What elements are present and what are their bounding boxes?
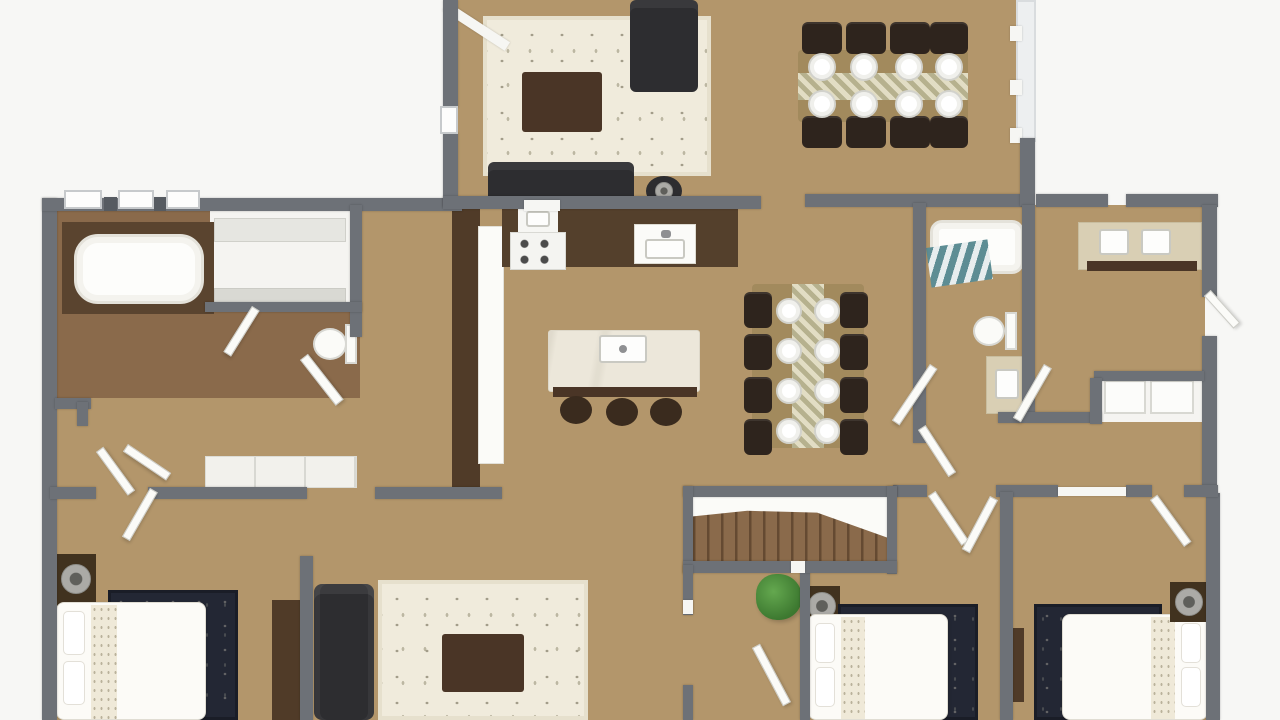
window-top-3 bbox=[166, 190, 200, 209]
wall-divider-center bbox=[913, 203, 926, 443]
balcony-railing bbox=[1016, 0, 1036, 142]
staircase bbox=[693, 497, 887, 563]
hall-dresser bbox=[205, 456, 357, 488]
kitchen-stove bbox=[510, 232, 566, 270]
wall-hall-bed-4 bbox=[1184, 485, 1218, 497]
toilet-jj-bowl bbox=[973, 316, 1005, 346]
wall-bed1-right bbox=[300, 556, 313, 720]
railing-tab-2 bbox=[1010, 80, 1022, 95]
plant bbox=[756, 574, 802, 620]
bedB-accent-band bbox=[1151, 617, 1175, 719]
vanity-cabinet bbox=[1087, 261, 1197, 271]
dining1-plate-3 bbox=[895, 53, 923, 81]
bedroom1-dresser bbox=[272, 600, 300, 720]
bath-towels bbox=[926, 239, 993, 287]
dining1-plate-8 bbox=[935, 90, 963, 118]
vanity-jj-sink bbox=[995, 369, 1019, 399]
wall-balcony-post bbox=[1020, 138, 1035, 206]
kitchen-island bbox=[548, 330, 700, 392]
wall-outer-right-lower bbox=[1206, 493, 1220, 720]
wall-bath-left-inner bbox=[350, 205, 362, 337]
bar-stool-3 bbox=[650, 398, 682, 426]
kitchen-entry-frame bbox=[524, 200, 560, 211]
hood-vent bbox=[526, 211, 550, 227]
wall-closet-r-top bbox=[1094, 371, 1204, 381]
toilet-jj bbox=[973, 312, 1019, 350]
dining2-plate-3 bbox=[776, 338, 802, 364]
wall-bedrooms-divider bbox=[1000, 492, 1013, 720]
dining1-plate-6 bbox=[850, 90, 878, 118]
wall-closet-left-bottom bbox=[205, 302, 362, 312]
bedA-hall-frame bbox=[683, 600, 693, 614]
hall-wardrobe bbox=[452, 205, 480, 490]
wall-hall-stub-bottom bbox=[683, 685, 693, 720]
window-stub-1 bbox=[104, 197, 117, 211]
island-faucet bbox=[619, 345, 627, 353]
wall-living-bottom bbox=[443, 196, 761, 209]
bed-1 bbox=[56, 602, 206, 720]
window-stub-2 bbox=[154, 197, 166, 211]
stair-exit-frame bbox=[791, 561, 805, 573]
bed1-pillow-2 bbox=[63, 661, 85, 705]
dining1-plate-2 bbox=[850, 53, 878, 81]
dining1-chair-6 bbox=[846, 116, 886, 148]
dining2-plate-6 bbox=[814, 378, 840, 404]
window-top-1 bbox=[64, 190, 102, 209]
kitchen-sink-counter bbox=[634, 224, 696, 264]
dining2-chair-2 bbox=[744, 334, 772, 370]
dining2-chair-8 bbox=[840, 419, 868, 455]
wall-outer-right-mid bbox=[1202, 336, 1217, 496]
loveseat bbox=[314, 584, 374, 720]
dining1-chair-5 bbox=[802, 116, 842, 148]
dining1-chair-7 bbox=[890, 116, 930, 148]
lamp-b bbox=[1175, 588, 1203, 616]
wall-stair-top bbox=[683, 486, 897, 497]
toilet-left-bowl bbox=[313, 328, 347, 360]
wall-bed1-top-1 bbox=[50, 487, 96, 499]
bar-stool-1 bbox=[560, 396, 592, 424]
wall-stair-bottom-2 bbox=[805, 561, 897, 573]
bed-a bbox=[808, 614, 948, 720]
dining1-plate-1 bbox=[808, 53, 836, 81]
bathtub-left bbox=[74, 234, 204, 304]
dining1-chair-4 bbox=[930, 22, 968, 54]
closet-shelfbox-2 bbox=[1150, 380, 1194, 414]
wall-bedA-left bbox=[800, 564, 810, 720]
bedB-threshold bbox=[1058, 487, 1126, 496]
closet-shelfbox-1 bbox=[1104, 380, 1146, 414]
wall-living-left-upper bbox=[443, 0, 458, 108]
vanity-sink-1 bbox=[1099, 229, 1129, 255]
kitchen-sink bbox=[645, 239, 685, 259]
wall-hall-bed-3 bbox=[1126, 485, 1152, 497]
closet-rod bbox=[214, 218, 346, 242]
dining1-plate-5 bbox=[808, 90, 836, 118]
nightstand-b bbox=[1170, 582, 1208, 622]
bedB-pillow-2 bbox=[1181, 667, 1201, 707]
wall-bed1-top-2 bbox=[148, 487, 307, 499]
dining1-chair-1 bbox=[802, 22, 842, 54]
sectional-sofa-vertical bbox=[630, 0, 698, 92]
dining2-plate-7 bbox=[776, 418, 802, 444]
dining2-plate-5 bbox=[776, 378, 802, 404]
dining1-plate-7 bbox=[895, 90, 923, 118]
wall-outer-left bbox=[42, 198, 57, 720]
dining2-chair-7 bbox=[840, 377, 868, 413]
wall-tr-top-1 bbox=[1036, 194, 1108, 207]
bar-stool-2 bbox=[606, 398, 638, 426]
toilet-jj-tank bbox=[1005, 312, 1017, 350]
bedB-pillow-1 bbox=[1181, 623, 1201, 663]
window-living-left bbox=[440, 106, 458, 134]
vanity-double bbox=[1078, 222, 1202, 270]
wall-stair-bottom-1 bbox=[683, 561, 791, 573]
door-right-exit bbox=[1204, 290, 1240, 329]
bed-b bbox=[1062, 614, 1208, 720]
bottom-rug-table bbox=[442, 634, 524, 692]
dining2-chair-5 bbox=[840, 292, 868, 328]
dining1-plate-4 bbox=[935, 53, 963, 81]
railing-tab-1 bbox=[1010, 26, 1022, 41]
vanity-sink-2 bbox=[1141, 229, 1171, 255]
kitchen-faucet bbox=[661, 230, 671, 238]
floorplan bbox=[0, 0, 1280, 720]
wall-outer-right-upper bbox=[1202, 205, 1217, 297]
dining1-chair-2 bbox=[846, 22, 886, 54]
dining2-chair-1 bbox=[744, 292, 772, 328]
dining2-chair-3 bbox=[744, 377, 772, 413]
kitchen-counter-left bbox=[478, 226, 504, 464]
wall-closet-r-left bbox=[1090, 378, 1102, 424]
dining2-plate-2 bbox=[814, 298, 840, 324]
dining1-chair-8 bbox=[930, 116, 968, 148]
dining2-chair-6 bbox=[840, 334, 868, 370]
bedA-accent-band bbox=[841, 617, 865, 719]
bedA-pillow-1 bbox=[815, 623, 835, 663]
dining2-plate-1 bbox=[776, 298, 802, 324]
window-top-2 bbox=[118, 190, 154, 209]
dining2-plate-8 bbox=[814, 418, 840, 444]
dining2-chair-4 bbox=[744, 419, 772, 455]
bed1-pillow-1 bbox=[63, 611, 85, 655]
bedA-pillow-2 bbox=[815, 667, 835, 707]
bed1-accent-band bbox=[91, 605, 117, 719]
dining2-plate-4 bbox=[814, 338, 840, 364]
dining1-chair-3 bbox=[890, 22, 930, 54]
coffee-table bbox=[522, 72, 602, 132]
nightstand-1 bbox=[56, 554, 96, 606]
lamp-1 bbox=[61, 564, 91, 594]
wall-hall-bed-1 bbox=[893, 485, 927, 497]
wall-bath-left-stub bbox=[77, 402, 88, 426]
wall-center-bottom bbox=[375, 487, 502, 499]
